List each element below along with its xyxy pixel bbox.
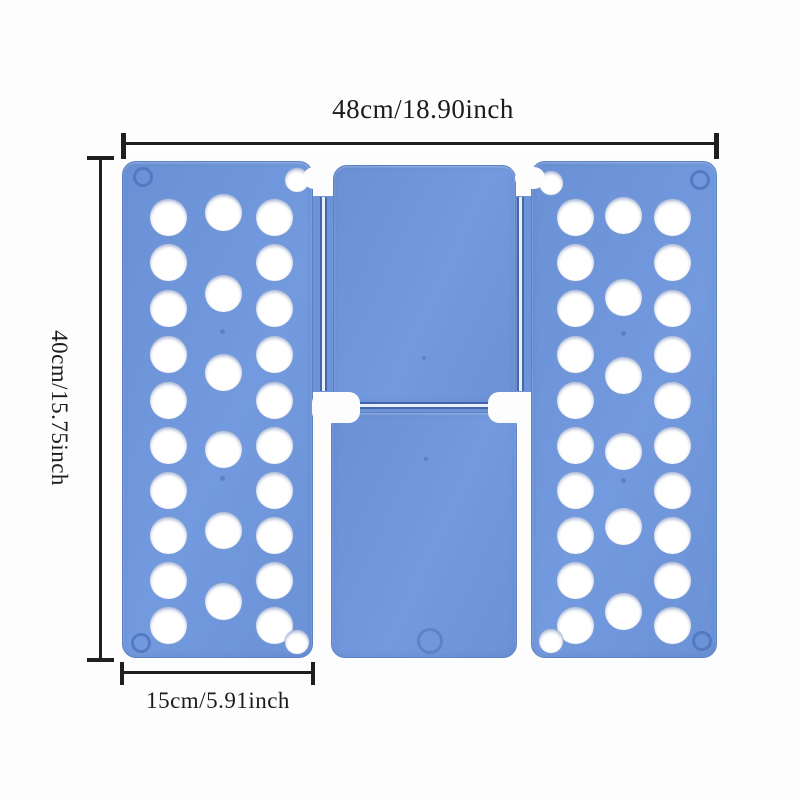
mold-dot [621, 331, 626, 336]
center-fold-line [358, 402, 490, 409]
fold-hole [654, 562, 691, 599]
fold-hole [605, 197, 642, 234]
height-dimension-cap-bottom [87, 658, 114, 662]
product-dimension-image: 48cm/18.90inch 40cm/15.75inch 15cm/5.91i… [0, 0, 800, 800]
fold-hole [557, 244, 594, 281]
fold-hole [256, 517, 293, 554]
mold-dot [424, 457, 428, 461]
fold-hole [654, 290, 691, 327]
mold-dot [621, 478, 626, 483]
fold-hole [654, 472, 691, 509]
fold-hole [605, 433, 642, 470]
fold-hole [205, 512, 242, 549]
fold-hole [150, 199, 187, 236]
fold-hole [205, 275, 242, 312]
fold-hole [557, 562, 594, 599]
mold-dot [422, 356, 426, 360]
width-dimension-line [123, 142, 717, 145]
fold-hole [256, 382, 293, 419]
fold-hole [205, 354, 242, 391]
screw-ring [133, 167, 153, 187]
fold-hole [150, 517, 187, 554]
fold-hole [557, 427, 594, 464]
ring-indent [417, 628, 443, 654]
center-top-panel [333, 165, 516, 404]
hinge-notch-top-left [303, 167, 333, 189]
fold-hole [654, 244, 691, 281]
fold-hole [150, 336, 187, 373]
fold-hole [205, 583, 242, 620]
left-fold-line [320, 197, 327, 391]
fold-hole [205, 194, 242, 231]
fold-hole [256, 290, 293, 327]
hinge-notch-junction-right [488, 392, 531, 423]
fold-hole [150, 382, 187, 419]
fold-hole [654, 427, 691, 464]
fold-hole [654, 199, 691, 236]
screw-ring [692, 631, 712, 651]
fold-hole [205, 431, 242, 468]
fold-hole [557, 336, 594, 373]
right-fold-line [517, 197, 524, 391]
fold-hole [605, 357, 642, 394]
fold-hole [256, 199, 293, 236]
fold-hole [150, 244, 187, 281]
fold-hole [654, 336, 691, 373]
fold-hole [256, 336, 293, 373]
fold-hole [256, 244, 293, 281]
width-dimension-label: 48cm/18.90inch [332, 94, 514, 125]
mold-dot [220, 329, 225, 334]
fold-hole [654, 607, 691, 644]
mold-dot [220, 476, 225, 481]
center-bottom-panel [331, 412, 517, 658]
hinge-notch-junction-left [312, 392, 360, 423]
panel-width-dimension-cap-left [120, 662, 124, 685]
fold-hole [557, 290, 594, 327]
screw-ring [690, 170, 710, 190]
width-dimension-cap-right [714, 133, 719, 159]
fold-hole [256, 472, 293, 509]
fold-hole [150, 607, 187, 644]
fold-hole [654, 382, 691, 419]
fold-hole [605, 508, 642, 545]
fold-hole [654, 517, 691, 554]
fold-hole [150, 427, 187, 464]
fold-hole [557, 382, 594, 419]
panel-width-dimension-label: 15cm/5.91inch [146, 688, 290, 714]
panel-width-dimension-cap-right [311, 662, 315, 685]
hinge-notch-top-right [515, 167, 545, 189]
fold-hole [256, 427, 293, 464]
screw-ring [131, 633, 151, 653]
fold-hole [605, 279, 642, 316]
fold-hole [557, 472, 594, 509]
height-dimension-label: 40cm/15.75inch [46, 330, 72, 486]
height-dimension-cap-top [87, 156, 114, 160]
panel-width-dimension-line [122, 671, 314, 674]
fold-hole [150, 472, 187, 509]
fold-hole [256, 562, 293, 599]
corner-hole [285, 630, 309, 654]
fold-hole [150, 562, 187, 599]
height-dimension-line [99, 158, 102, 660]
fold-hole [150, 290, 187, 327]
fold-hole [557, 517, 594, 554]
corner-hole [539, 629, 563, 653]
fold-hole [557, 199, 594, 236]
fold-hole [605, 593, 642, 630]
width-dimension-cap-left [121, 133, 126, 159]
